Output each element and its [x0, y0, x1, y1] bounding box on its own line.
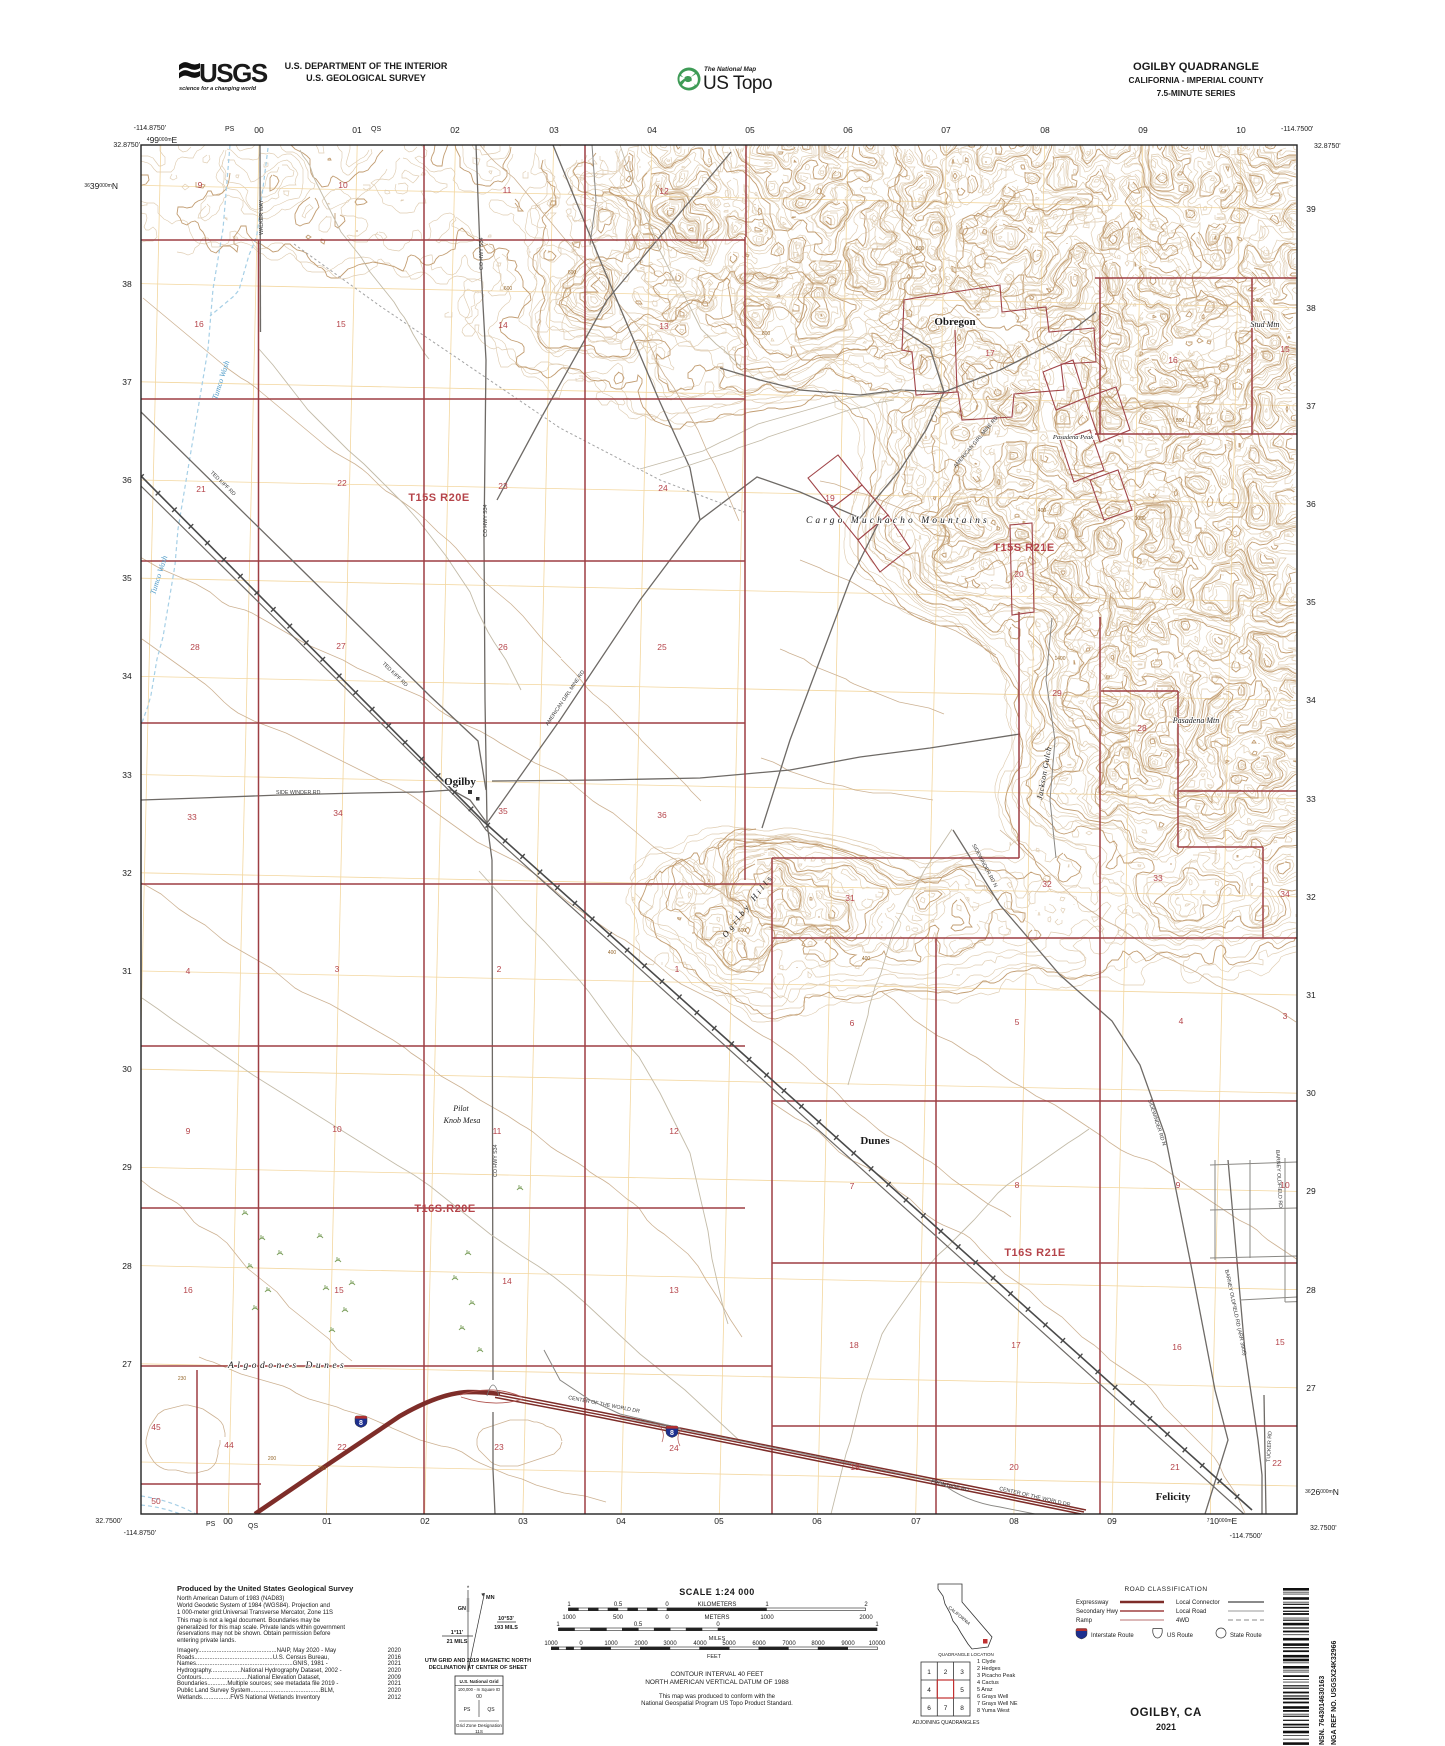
- svg-text:KILOMETERS: KILOMETERS: [698, 1602, 737, 1608]
- svg-text:10: 10: [338, 180, 348, 190]
- svg-text:33: 33: [122, 770, 132, 780]
- svg-text:16: 16: [183, 1285, 193, 1295]
- svg-text:1000: 1000: [544, 1641, 558, 1647]
- svg-text:Cargo Muchacho Mountains: Cargo Muchacho Mountains: [806, 516, 990, 526]
- svg-text:20: 20: [1014, 569, 1024, 579]
- svg-text:31: 31: [122, 966, 132, 976]
- svg-text:Interstate Route: Interstate Route: [1091, 1633, 1134, 1639]
- svg-text:30: 30: [1306, 1088, 1316, 1098]
- svg-text:4000: 4000: [693, 1641, 707, 1647]
- svg-text:CALIFORNIA - IMPERIAL COUNTY: CALIFORNIA - IMPERIAL COUNTY: [1128, 75, 1264, 85]
- svg-text:8 Yuma West: 8 Yuma West: [977, 1708, 1010, 1714]
- svg-text:National Geospatial Program US: National Geospatial Program US Topo Prod…: [641, 1701, 793, 1707]
- svg-text:03: 03: [549, 125, 559, 135]
- svg-text:36: 36: [1306, 499, 1316, 509]
- svg-text:ADJOINING QUADRANGLES: ADJOINING QUADRANGLES: [913, 1720, 981, 1726]
- svg-text:NSN. 7643014630163: NSN. 7643014630163: [1319, 1676, 1326, 1745]
- svg-text:28: 28: [1306, 1285, 1316, 1295]
- svg-text:28: 28: [190, 642, 200, 652]
- svg-text:QUADRANGLE LOCATION: QUADRANGLE LOCATION: [938, 1652, 993, 1657]
- svg-text:2021: 2021: [1156, 1722, 1176, 1732]
- svg-text:16: 16: [1168, 355, 1178, 365]
- svg-text:2021: 2021: [388, 1661, 402, 1667]
- svg-text:reservations may not be shown.: reservations may not be shown. Obtain pe…: [177, 1631, 331, 1637]
- svg-text:0.5: 0.5: [634, 1622, 643, 1628]
- svg-text:09: 09: [1138, 125, 1148, 135]
- svg-text:1: 1: [675, 964, 680, 974]
- svg-text:1400: 1400: [1252, 298, 1263, 304]
- svg-text:21 MILS: 21 MILS: [447, 1639, 468, 1645]
- svg-text:31: 31: [845, 893, 855, 903]
- svg-text:5000: 5000: [722, 1641, 736, 1647]
- svg-text:34: 34: [1280, 889, 1290, 899]
- svg-text:24: 24: [669, 1443, 679, 1453]
- svg-text:34: 34: [122, 671, 132, 681]
- svg-text:9000: 9000: [841, 1641, 855, 1647]
- svg-text:28: 28: [1137, 723, 1147, 733]
- svg-text:3: 3: [960, 1669, 964, 1676]
- svg-text:15: 15: [334, 1285, 344, 1295]
- svg-text:33: 33: [1153, 873, 1163, 883]
- svg-text:4: 4: [927, 1687, 931, 1694]
- svg-text:50: 50: [151, 1496, 161, 1506]
- svg-text:14: 14: [502, 1276, 512, 1286]
- svg-text:QS: QS: [248, 1523, 258, 1530]
- svg-text:4: 4: [1179, 1016, 1184, 1026]
- svg-text:World Geodetic System of 1984: World Geodetic System of 1984 (WGS84). P…: [177, 1603, 330, 1609]
- svg-text:37: 37: [122, 377, 132, 387]
- svg-text:CONTOUR INTERVAL 40 FEET: CONTOUR INTERVAL 40 FEET: [671, 1671, 764, 1678]
- svg-text:5 Araz: 5 Araz: [977, 1687, 993, 1693]
- svg-text:Produced by the United States: Produced by the United States Geological…: [177, 1584, 354, 1593]
- svg-text:Obregon: Obregon: [934, 316, 975, 328]
- svg-text:1°11': 1°11': [451, 1630, 464, 1636]
- svg-text:1: 1: [927, 1669, 931, 1676]
- svg-text:Stud Mtn: Stud Mtn: [1250, 320, 1279, 329]
- svg-text:29: 29: [1306, 1186, 1316, 1196]
- svg-text:23: 23: [494, 1442, 504, 1452]
- svg-text:6000: 6000: [752, 1641, 766, 1647]
- svg-text:U.S. National Grid: U.S. National Grid: [459, 1679, 498, 1684]
- svg-text:5: 5: [1015, 1017, 1020, 1027]
- svg-text:8: 8: [960, 1705, 964, 1712]
- svg-text:North American Datum of 1983 (: North American Datum of 1983 (NAD83): [177, 1596, 284, 1602]
- svg-text:8000: 8000: [811, 1641, 825, 1647]
- svg-text:Ogilby: Ogilby: [444, 776, 476, 788]
- svg-text:600: 600: [738, 928, 747, 934]
- svg-text:29: 29: [122, 1162, 132, 1172]
- svg-text:3 Picacho Peak: 3 Picacho Peak: [977, 1673, 1015, 1679]
- svg-text:33: 33: [187, 812, 197, 822]
- svg-text:24: 24: [658, 483, 668, 493]
- svg-text:17: 17: [985, 348, 995, 358]
- svg-text:2: 2: [944, 1669, 948, 1676]
- svg-text:38: 38: [122, 279, 132, 289]
- svg-text:13: 13: [669, 1285, 679, 1295]
- svg-text:35: 35: [498, 806, 508, 816]
- svg-text:7: 7: [850, 1181, 855, 1191]
- svg-text:8: 8: [670, 1430, 674, 1437]
- svg-text:32: 32: [1042, 879, 1052, 889]
- svg-text:U.S. DEPARTMENT OF THE INTERIO: U.S. DEPARTMENT OF THE INTERIOR: [285, 61, 448, 71]
- svg-text:QS: QS: [371, 126, 381, 133]
- svg-text:UTM GRID AND 2019 MAGNETIC NOR: UTM GRID AND 2019 MAGNETIC NORTH: [425, 1658, 531, 1664]
- svg-text:-114.8750': -114.8750': [124, 1530, 156, 1537]
- svg-text:GN: GN: [458, 1606, 466, 1612]
- svg-text:27: 27: [336, 641, 346, 651]
- svg-text:27: 27: [1306, 1383, 1316, 1393]
- svg-text:State Route: State Route: [1230, 1633, 1262, 1639]
- svg-text:T15S R20E: T15S R20E: [408, 492, 469, 504]
- svg-text:6: 6: [927, 1705, 931, 1712]
- svg-text:Expressway: Expressway: [1076, 1600, 1108, 1606]
- svg-text:16: 16: [194, 319, 204, 329]
- svg-text:NGA REF NO. USGSX24K32966: NGA REF NO. USGSX24K32966: [1331, 1641, 1338, 1745]
- svg-text:6 Grays Well: 6 Grays Well: [977, 1694, 1008, 1700]
- svg-text:7.5-MINUTE SERIES: 7.5-MINUTE SERIES: [1157, 88, 1236, 98]
- svg-text:00: 00: [254, 125, 264, 135]
- svg-text:10°53': 10°53': [498, 1616, 514, 1622]
- svg-text:08: 08: [1009, 1516, 1019, 1526]
- svg-text:10000: 10000: [869, 1641, 886, 1647]
- svg-text:Public Land Survey System..: Public Land Survey System...............…: [177, 1688, 335, 1694]
- svg-text:19: 19: [850, 1462, 860, 1472]
- svg-text:2020: 2020: [388, 1688, 402, 1694]
- svg-text:2000: 2000: [859, 1615, 873, 1621]
- svg-text:Pasadena Mtn: Pasadena Mtn: [1172, 716, 1219, 725]
- svg-text:-114.8750': -114.8750': [134, 125, 166, 132]
- svg-text:4 Cactus: 4 Cactus: [977, 1680, 999, 1686]
- svg-text:11: 11: [503, 185, 512, 195]
- svg-text:17: 17: [1011, 1340, 1021, 1350]
- svg-text:19: 19: [825, 493, 835, 503]
- svg-text:Knob Mesa: Knob Mesa: [443, 1116, 481, 1125]
- svg-text:22: 22: [337, 1442, 347, 1452]
- svg-text:METERS: METERS: [704, 1615, 729, 1621]
- svg-text:600: 600: [504, 286, 513, 292]
- svg-text:600: 600: [568, 270, 577, 276]
- svg-text:-114.7500': -114.7500': [1230, 1533, 1262, 1540]
- svg-text:ROAD CLASSIFICATION: ROAD CLASSIFICATION: [1124, 1586, 1207, 1593]
- svg-text:33: 33: [1306, 794, 1316, 804]
- svg-text:1000: 1000: [1134, 516, 1145, 522]
- svg-text:U.S. GEOLOGICAL SURVEY: U.S. GEOLOGICAL SURVEY: [306, 73, 426, 83]
- svg-text:US Topo: US Topo: [703, 73, 772, 94]
- svg-text:T16S.R20E: T16S.R20E: [414, 1203, 475, 1215]
- svg-text:29: 29: [1052, 688, 1062, 698]
- svg-text:WALKER WAY: WALKER WAY: [259, 199, 265, 235]
- svg-text:09: 09: [1107, 1516, 1117, 1526]
- svg-text:9: 9: [1176, 1180, 1181, 1190]
- svg-text:45: 45: [151, 1422, 161, 1432]
- svg-text:7: 7: [944, 1705, 948, 1712]
- svg-text:SCALE 1:24 000: SCALE 1:24 000: [679, 1587, 755, 1597]
- svg-text:2012: 2012: [388, 1695, 402, 1701]
- svg-text:This map is not a legal docume: This map is not a legal document. Bounda…: [177, 1618, 321, 1624]
- svg-text:OGILBY, CA: OGILBY, CA: [1130, 1707, 1202, 1719]
- svg-text:11: 11: [493, 1126, 502, 1136]
- svg-text:Secondary Hwy: Secondary Hwy: [1076, 1609, 1118, 1615]
- svg-text:23: 23: [498, 481, 508, 491]
- svg-text:21: 21: [1170, 1462, 1180, 1472]
- svg-text:The National Map: The National Map: [704, 66, 756, 73]
- svg-text:1 000-meter grid:Universal Tra: 1 000-meter grid:Universal Transverse Me…: [177, 1610, 333, 1616]
- svg-text:36: 36: [657, 810, 667, 820]
- svg-text:35: 35: [1306, 597, 1316, 607]
- svg-text:800: 800: [1176, 418, 1185, 424]
- svg-text:Local Road: Local Road: [1176, 1609, 1206, 1615]
- svg-text:CO HWY S34: CO HWY S34: [493, 1144, 499, 1177]
- svg-text:2 Hedges: 2 Hedges: [977, 1666, 1001, 1672]
- svg-text:1000: 1000: [760, 1615, 774, 1621]
- svg-text:44: 44: [224, 1440, 234, 1450]
- svg-text:05: 05: [714, 1516, 724, 1526]
- svg-text:science for a changing world: science for a changing world: [179, 86, 257, 92]
- svg-text:8: 8: [1015, 1180, 1020, 1190]
- svg-text:FEET: FEET: [707, 1654, 722, 1660]
- svg-text:21: 21: [196, 484, 206, 494]
- svg-text:2000: 2000: [634, 1641, 648, 1647]
- svg-text:00: 00: [223, 1516, 233, 1526]
- svg-text:02: 02: [450, 125, 460, 135]
- svg-text:7000: 7000: [782, 1641, 796, 1647]
- svg-text:32: 32: [122, 868, 132, 878]
- svg-text:18: 18: [849, 1340, 859, 1350]
- svg-text:20: 20: [1009, 1462, 1019, 1472]
- svg-text:3: 3: [1283, 1011, 1288, 1021]
- svg-text:Hydrography..................N: Hydrography..................National Hy…: [177, 1668, 342, 1674]
- svg-text:entering private lands.: entering private lands.: [177, 1638, 236, 1644]
- svg-text:27: 27: [122, 1359, 132, 1369]
- svg-text:03: 03: [518, 1516, 528, 1526]
- svg-text:07: 07: [941, 125, 951, 135]
- svg-text:34: 34: [333, 808, 343, 818]
- svg-text:13: 13: [659, 321, 669, 331]
- svg-text:PS: PS: [464, 1707, 471, 1713]
- svg-text:100,000 - m Square ID: 100,000 - m Square ID: [458, 1687, 500, 1692]
- svg-text:05: 05: [745, 125, 755, 135]
- svg-text:08: 08: [1040, 125, 1050, 135]
- svg-text:PS: PS: [206, 1521, 216, 1528]
- svg-text:500: 500: [613, 1615, 624, 1621]
- svg-text:Pasadena Peak: Pasadena Peak: [1052, 434, 1093, 441]
- svg-text:-114.7500': -114.7500': [1281, 126, 1313, 133]
- svg-text:31: 31: [1306, 990, 1316, 1000]
- svg-text:02: 02: [420, 1516, 430, 1526]
- svg-text:06: 06: [843, 125, 853, 135]
- svg-text:16: 16: [1172, 1342, 1182, 1352]
- svg-text:15: 15: [1275, 1337, 1285, 1347]
- svg-text:06: 06: [812, 1516, 822, 1526]
- svg-text:00: 00: [476, 1694, 482, 1700]
- svg-text:CO HWY S34: CO HWY S34: [483, 504, 489, 537]
- svg-text:30: 30: [122, 1064, 132, 1074]
- svg-text:01: 01: [352, 125, 362, 135]
- svg-text:3: 3: [335, 964, 340, 974]
- svg-text:MN: MN: [486, 1595, 495, 1601]
- svg-text:OGILBY QUADRANGLE: OGILBY QUADRANGLE: [1133, 61, 1260, 73]
- svg-text:CO HWY S34: CO HWY S34: [479, 237, 485, 270]
- svg-text:200: 200: [268, 1456, 277, 1462]
- svg-text:400: 400: [862, 956, 871, 962]
- svg-text:04: 04: [616, 1516, 626, 1526]
- svg-text:07: 07: [911, 1516, 921, 1526]
- svg-text:36: 36: [122, 475, 132, 485]
- svg-text:12: 12: [669, 1126, 679, 1136]
- svg-text:32: 32: [1306, 892, 1316, 902]
- svg-text:15: 15: [1280, 344, 1290, 354]
- svg-text:4: 4: [186, 966, 191, 976]
- svg-text:1000: 1000: [604, 1641, 618, 1647]
- svg-text:34: 34: [1306, 695, 1316, 705]
- svg-text:32.8750': 32.8750': [1314, 143, 1341, 150]
- svg-text:14: 14: [498, 320, 508, 330]
- svg-text:7 Grays Well NE: 7 Grays Well NE: [977, 1701, 1018, 1707]
- svg-text:26: 26: [498, 642, 508, 652]
- svg-text:32.7500': 32.7500': [95, 1518, 122, 1525]
- svg-text:T16S R21E: T16S R21E: [1004, 1247, 1065, 1259]
- svg-text:US Route: US Route: [1167, 1633, 1194, 1639]
- svg-text:SIDE WINDER RD: SIDE WINDER RD: [276, 790, 321, 796]
- svg-text:DECLINATION AT CENTER OF SHEET: DECLINATION AT CENTER OF SHEET: [429, 1665, 528, 1671]
- svg-text:39: 39: [1306, 204, 1316, 214]
- svg-text:PS: PS: [225, 126, 235, 133]
- svg-text:5: 5: [960, 1687, 964, 1694]
- svg-text:400: 400: [608, 950, 617, 956]
- svg-text:Pilot: Pilot: [452, 1104, 469, 1113]
- svg-text:2021: 2021: [388, 1681, 402, 1687]
- svg-text:800: 800: [762, 331, 771, 337]
- svg-text:200: 200: [318, 1466, 327, 1472]
- svg-text:6: 6: [850, 1018, 855, 1028]
- svg-text:This map was produced to confo: This map was produced to conform with th…: [659, 1694, 776, 1700]
- svg-text:28: 28: [122, 1261, 132, 1271]
- svg-text:Algodones Dunes: Algodones Dunes: [227, 1361, 347, 1371]
- svg-text:Imagery.......................: Imagery.................................…: [177, 1648, 336, 1654]
- svg-text:1000: 1000: [562, 1615, 576, 1621]
- svg-text:22: 22: [337, 478, 347, 488]
- svg-text:Names.........................: Names...................................…: [177, 1661, 328, 1667]
- svg-text:1400: 1400: [1054, 656, 1065, 662]
- svg-text:Grid Zone Designation: Grid Zone Designation: [456, 1723, 502, 1728]
- svg-text:1 Clyde: 1 Clyde: [977, 1659, 996, 1665]
- svg-text:38: 38: [1306, 303, 1316, 313]
- svg-text:01: 01: [322, 1516, 332, 1526]
- svg-text:35: 35: [122, 573, 132, 583]
- svg-text:NORTH AMERICAN VERTICAL DATUM: NORTH AMERICAN VERTICAL DATUM OF 1988: [645, 1679, 789, 1686]
- svg-text:Boundaries............Multiple: Boundaries............Multiple sources; …: [177, 1681, 338, 1687]
- svg-text:11S: 11S: [475, 1729, 483, 1734]
- svg-text:Wetlands.................FWS: Wetlands.................FWS National We…: [177, 1695, 320, 1701]
- svg-text:22: 22: [1272, 1458, 1282, 1468]
- svg-text:400: 400: [1038, 508, 1047, 514]
- svg-text:230: 230: [178, 1376, 187, 1382]
- svg-text:800: 800: [916, 246, 925, 252]
- svg-text:37: 37: [1306, 401, 1316, 411]
- svg-text:8: 8: [359, 1420, 363, 1427]
- svg-text:2020: 2020: [388, 1668, 402, 1674]
- svg-text:25: 25: [657, 642, 667, 652]
- svg-text:15: 15: [336, 319, 346, 329]
- svg-text:9: 9: [198, 180, 203, 190]
- svg-text:T15S R21E: T15S R21E: [993, 542, 1054, 554]
- svg-text:9: 9: [186, 1126, 191, 1136]
- svg-text:2: 2: [497, 964, 502, 974]
- svg-text:Felicity: Felicity: [1156, 1491, 1191, 1503]
- svg-text:3000: 3000: [663, 1641, 677, 1647]
- svg-text:0.5: 0.5: [614, 1602, 623, 1608]
- svg-text:QS: QS: [487, 1707, 495, 1713]
- svg-text:10: 10: [332, 1124, 342, 1134]
- svg-text:USGS: USGS: [199, 58, 268, 88]
- svg-text:32.7500': 32.7500': [1310, 1525, 1337, 1532]
- svg-text:10: 10: [1236, 125, 1246, 135]
- svg-text:Ramp: Ramp: [1076, 1618, 1093, 1624]
- svg-text:12: 12: [659, 186, 669, 196]
- svg-text:Dunes: Dunes: [860, 1135, 890, 1147]
- svg-text:04: 04: [647, 125, 657, 135]
- svg-text:32.8750': 32.8750': [113, 142, 140, 149]
- svg-text:4WD: 4WD: [1176, 1618, 1190, 1624]
- svg-text:Local Connector: Local Connector: [1176, 1600, 1220, 1606]
- svg-text:193 MILS: 193 MILS: [494, 1625, 518, 1631]
- svg-text:2020: 2020: [388, 1648, 402, 1654]
